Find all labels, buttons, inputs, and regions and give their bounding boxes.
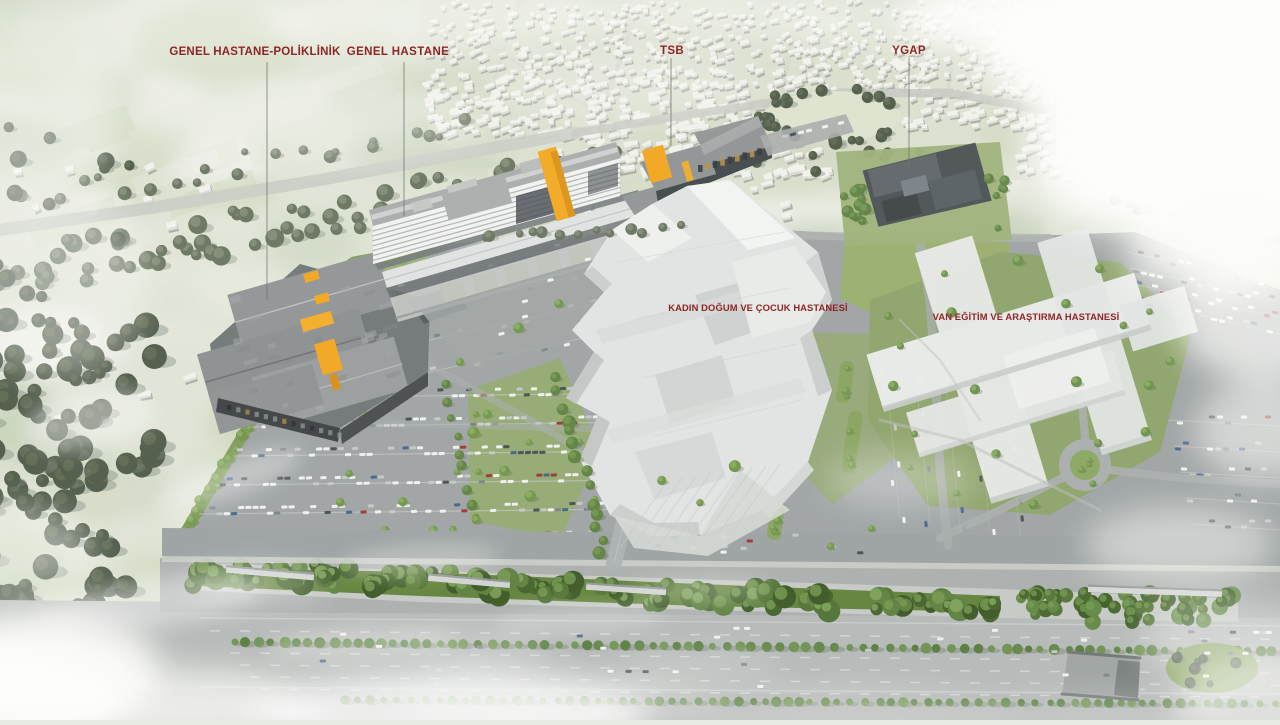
- svg-text:GENEL HASTANE: GENEL HASTANE: [347, 46, 450, 58]
- svg-text:VAN EĞİTİM VE ARAŞTIRMA HASTAN: VAN EĞİTİM VE ARAŞTIRMA HASTANESİ: [933, 311, 1120, 322]
- svg-text:YGAP: YGAP: [892, 45, 926, 57]
- svg-text:TSB: TSB: [660, 45, 684, 57]
- svg-text:GENEL HASTANE-POLİKLİNİK: GENEL HASTANE-POLİKLİNİK: [169, 45, 341, 58]
- svg-text:KADIN DOĞUM VE ÇOCUK HASTANESİ: KADIN DOĞUM VE ÇOCUK HASTANESİ: [668, 302, 847, 313]
